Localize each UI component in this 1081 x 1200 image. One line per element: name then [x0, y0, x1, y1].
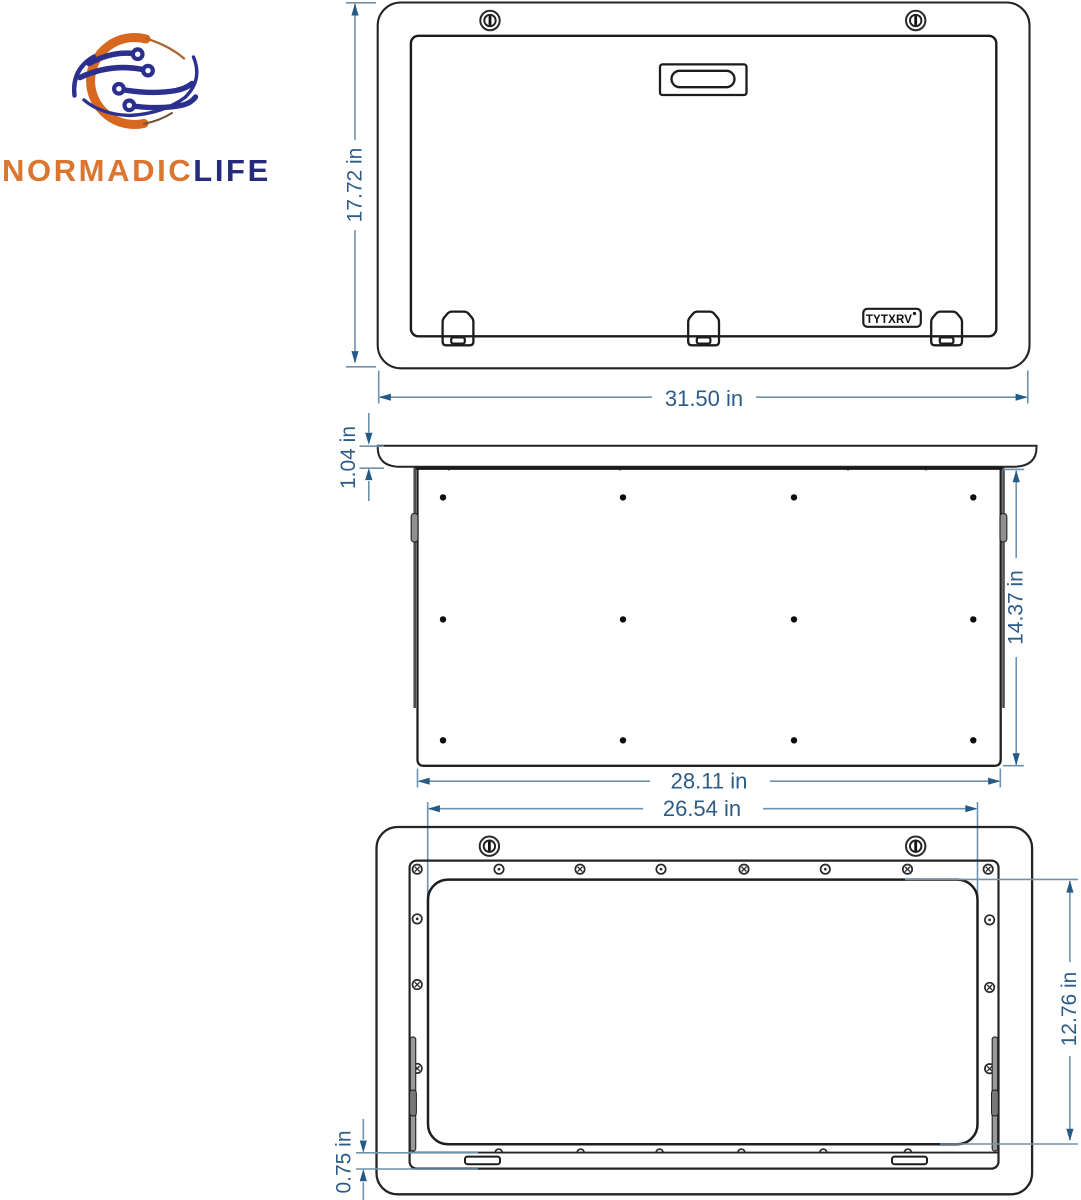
svg-text:TYTXRV: TYTXRV — [866, 314, 912, 326]
svg-text:31.50 in: 31.50 in — [665, 386, 743, 411]
svg-text:NORMADICLIFE: NORMADICLIFE — [2, 153, 271, 188]
svg-text:0.75 in: 0.75 in — [333, 1130, 356, 1193]
svg-text:1.04 in: 1.04 in — [337, 426, 360, 489]
svg-text:17.72 in: 17.72 in — [344, 148, 367, 223]
svg-text:26.54 in: 26.54 in — [663, 796, 741, 821]
svg-text:14.37 in: 14.37 in — [1005, 570, 1028, 645]
svg-text:28.11 in: 28.11 in — [671, 769, 748, 794]
svg-text:12.76 in: 12.76 in — [1058, 972, 1081, 1047]
